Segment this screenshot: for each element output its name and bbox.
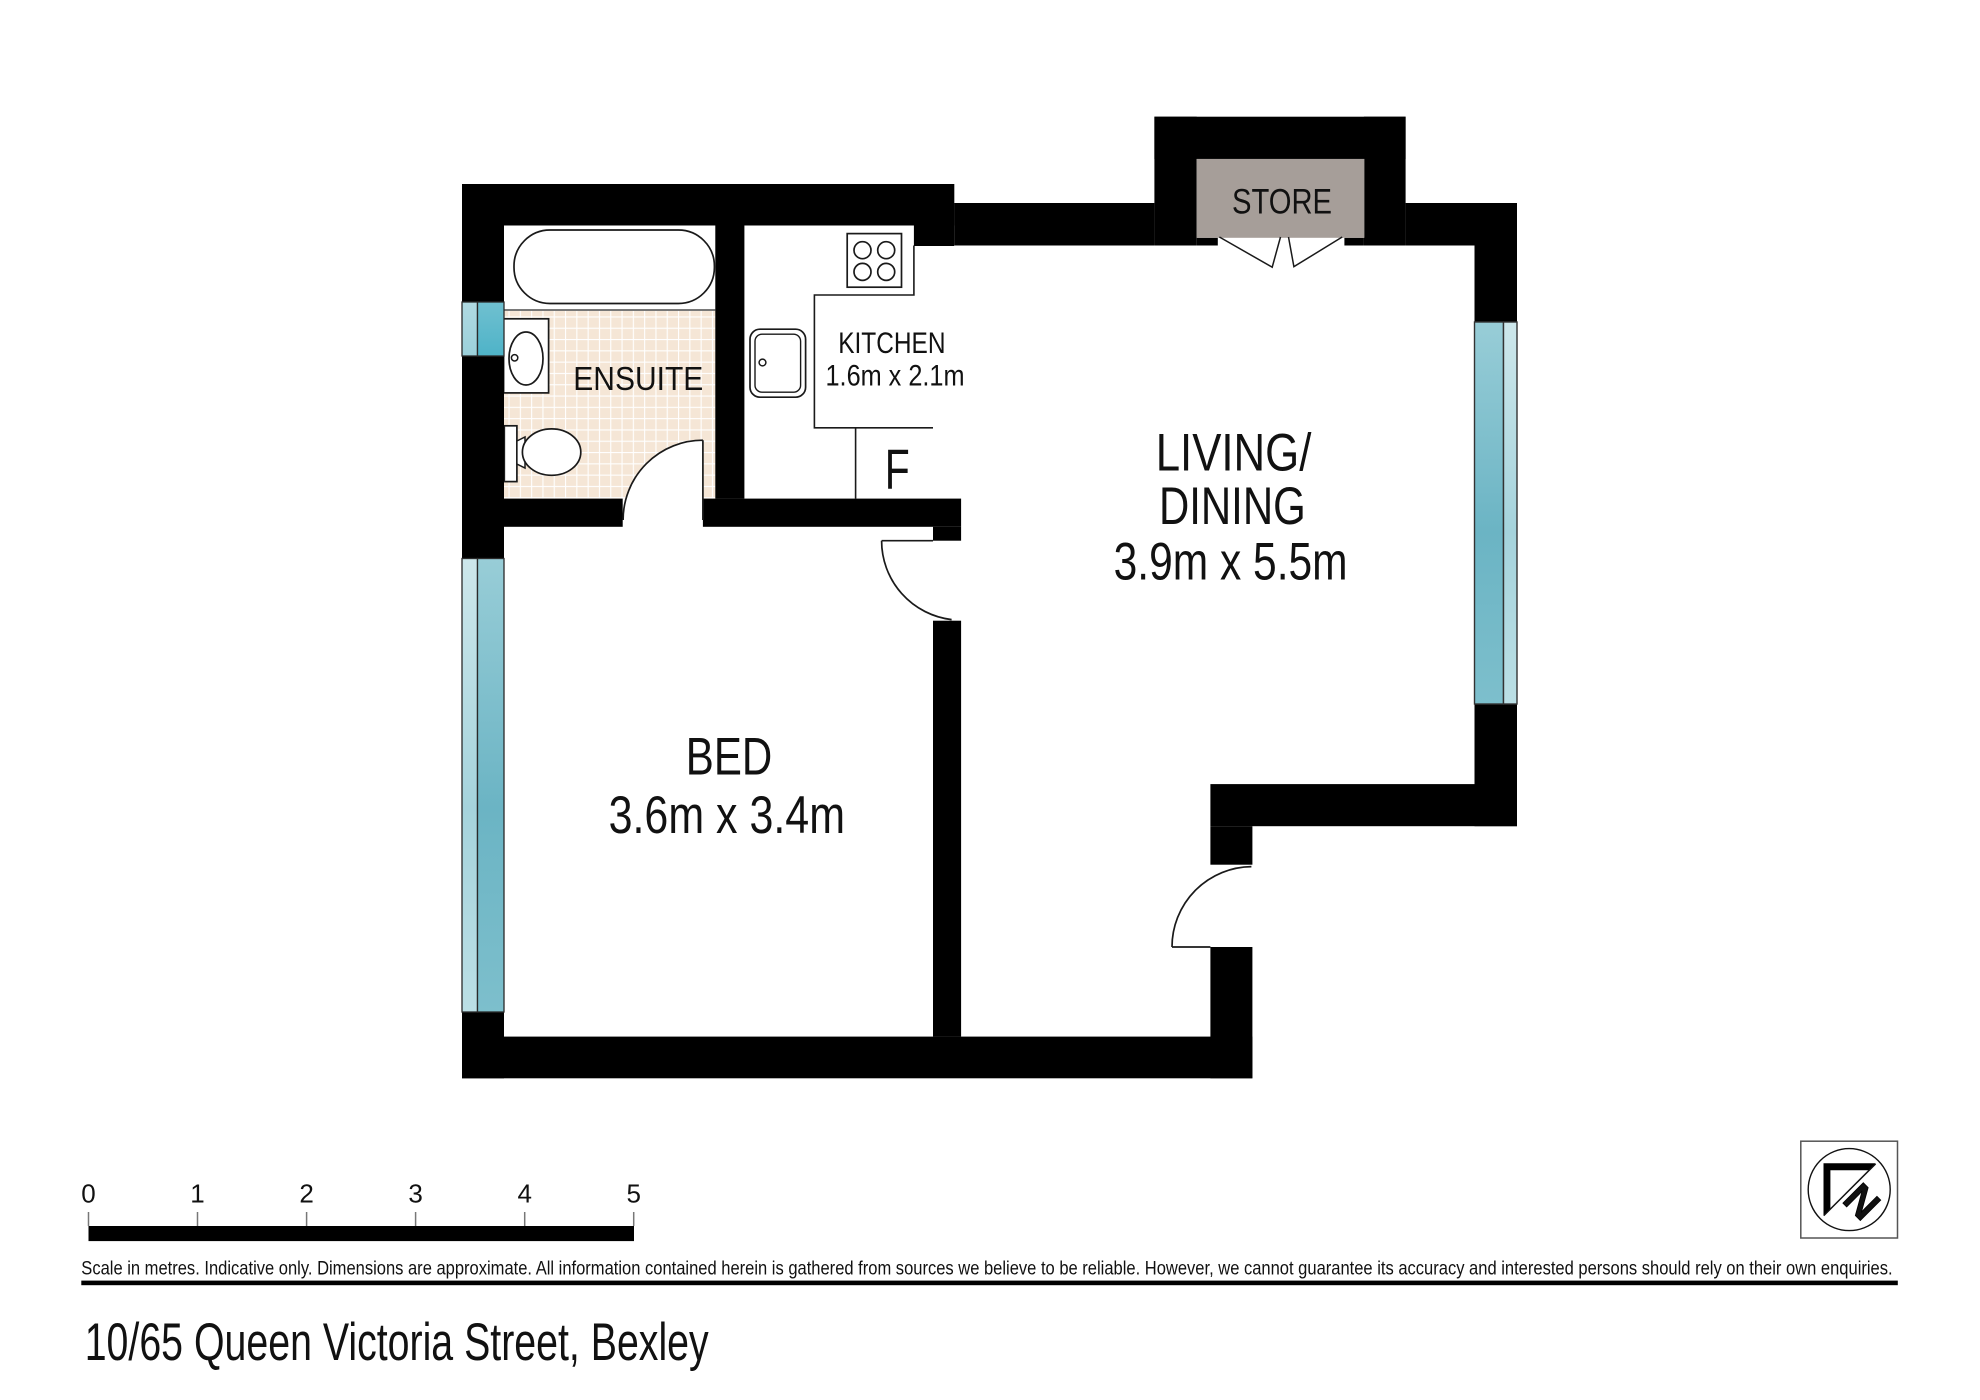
svg-text:Scale in metres. Indicative on: Scale in metres. Indicative only. Dimens… bbox=[81, 1257, 1892, 1279]
svg-text:ENSUITE: ENSUITE bbox=[573, 360, 703, 397]
svg-text:0: 0 bbox=[81, 1179, 95, 1209]
svg-text:4: 4 bbox=[517, 1179, 531, 1209]
svg-text:3: 3 bbox=[408, 1179, 422, 1209]
svg-text:10/65 Queen Victoria Street, B: 10/65 Queen Victoria Street, Bexley bbox=[85, 1313, 709, 1372]
svg-text:LIVING/: LIVING/ bbox=[1156, 424, 1312, 483]
svg-text:3.6m x 3.4m: 3.6m x 3.4m bbox=[609, 786, 845, 845]
svg-text:STORE: STORE bbox=[1232, 183, 1332, 222]
svg-text:F: F bbox=[885, 438, 910, 502]
svg-text:5: 5 bbox=[626, 1179, 640, 1209]
svg-text:1: 1 bbox=[190, 1179, 204, 1209]
svg-text:BED: BED bbox=[686, 728, 772, 787]
svg-text:DINING: DINING bbox=[1159, 477, 1306, 536]
svg-text:1.6m x 2.1m: 1.6m x 2.1m bbox=[826, 360, 965, 393]
svg-text:3.9m x 5.5m: 3.9m x 5.5m bbox=[1114, 533, 1348, 592]
svg-text:KITCHEN: KITCHEN bbox=[838, 327, 945, 360]
svg-text:2: 2 bbox=[299, 1179, 313, 1209]
